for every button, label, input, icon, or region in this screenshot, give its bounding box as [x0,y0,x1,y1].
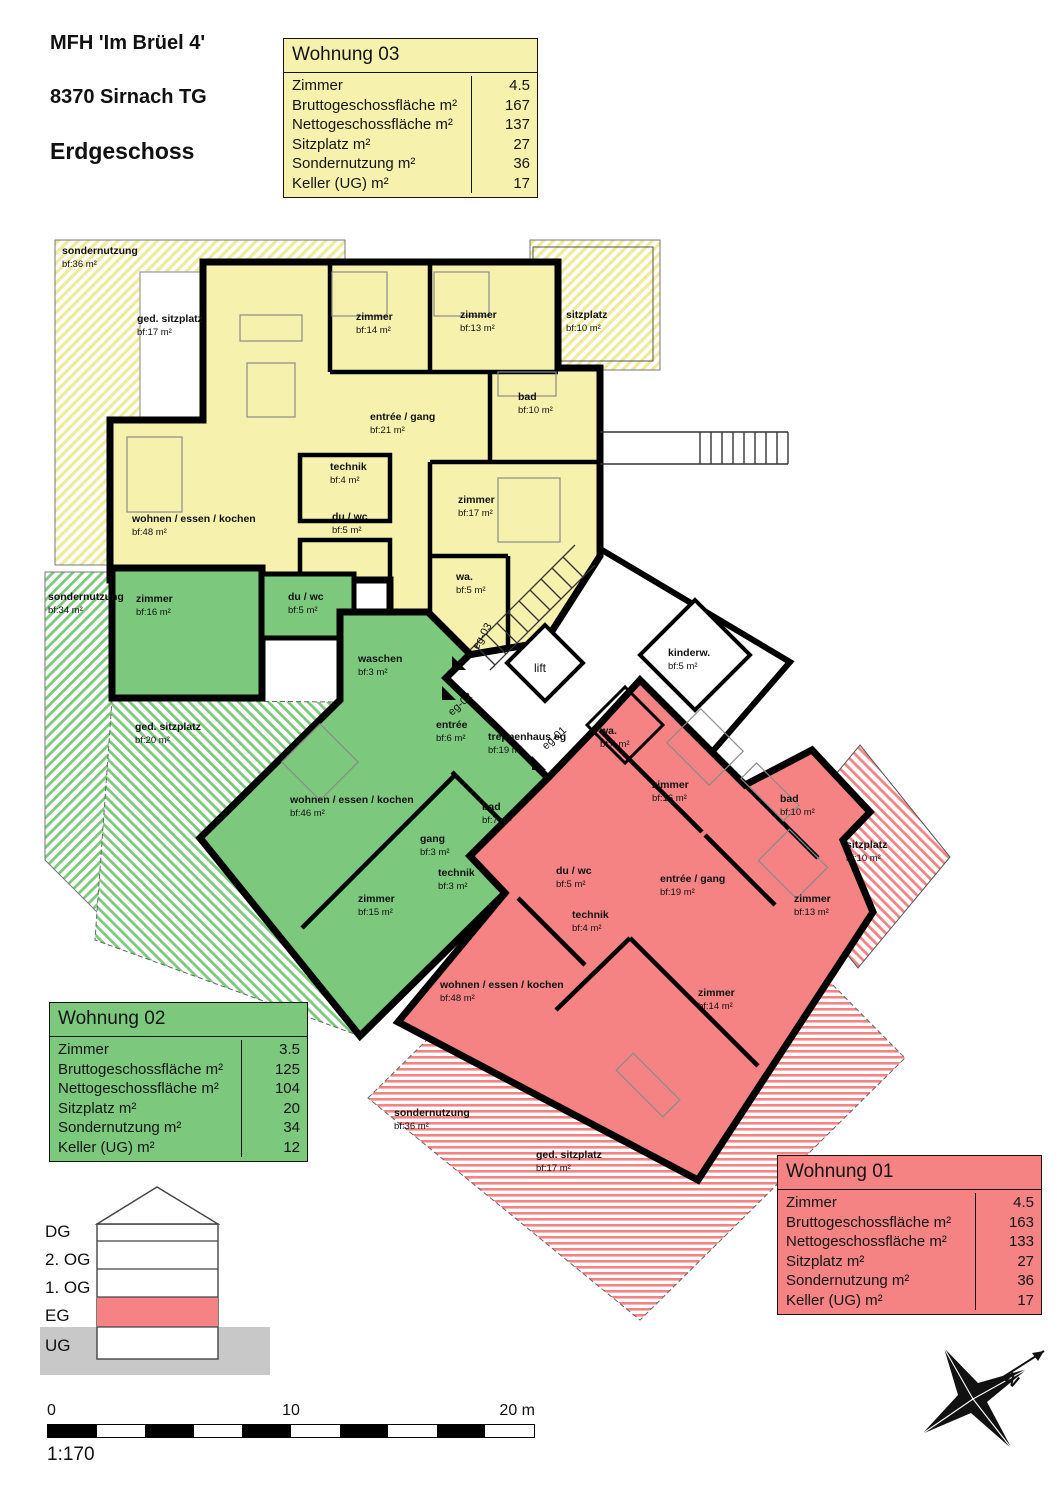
room-area-label: bf:5 m² [668,661,698,672]
table-row: Bruttogeschossfläche m²163 [778,1213,1041,1233]
compass-rose: N [912,1336,1052,1476]
table-row: Nettogeschossfläche m²133 [778,1232,1041,1252]
room-area-label: bf:7 m² [482,815,512,826]
room-area-label: bf:10 m² [780,807,815,818]
table-wohnung-01: Wohnung 01 Zimmer4.5Bruttogeschossfläche… [777,1155,1042,1315]
scale-start: 0 [47,1402,56,1420]
room-area-label: bf:6 m² [436,733,466,744]
room-area-label: bf:20 m² [135,735,170,746]
room-area-label: bf:17 m² [137,327,172,338]
room-label: du / wc [332,511,368,523]
room-area-label: bf:16 m² [136,607,171,618]
room-area-label: bf:36 m² [62,259,97,270]
row-value: 12 [241,1138,307,1158]
room-label: technik [330,461,367,473]
section-floor-eg-fill [97,1297,218,1327]
room-area-label: bf:5 m² [456,585,486,596]
room-label: entrée / gang [370,411,435,423]
room-area-label: bf:4 m² [572,923,602,934]
row-label: Bruttogeschossfläche m² [778,1213,975,1233]
row-label: Keller (UG) m² [50,1138,241,1158]
table-row: Sitzplatz m²20 [50,1099,307,1119]
row-label: Zimmer [50,1040,241,1060]
room-area-label: bf:4 m² [330,475,360,486]
floor-label-dg: DG [45,1222,71,1241]
room-area-label: bf:5 m² [332,525,362,536]
table-row: Sondernutzung m²34 [50,1118,307,1138]
room-area-label: bf:10 m² [518,405,553,416]
room-area-label: bf:36 m² [394,1121,429,1132]
row-value: 167 [471,96,537,116]
room-label: zimmer [652,779,689,791]
room-area-label: bf:14 m² [356,325,391,336]
row-label: Sondernutzung m² [50,1118,241,1138]
room-area-label: bf:48 m² [132,527,167,538]
room-label: zimmer [458,494,495,506]
row-value: 27 [975,1252,1041,1272]
row-value: 27 [471,135,537,155]
row-value: 4.5 [471,76,537,96]
room-label: zimmer [358,893,395,905]
room-area-label: bf:19 m² [488,745,523,756]
room-area-label: bf:3 m² [420,847,450,858]
room-label: kinderw. [668,647,710,659]
room-area-label: bf:15 m² [358,907,393,918]
row-label: Zimmer [778,1193,975,1213]
room-label: entrée [436,719,468,731]
room-label: bad [780,793,799,805]
table-row: Bruttogeschossfläche m²167 [284,96,537,116]
row-value: 125 [241,1060,307,1080]
row-label: Sitzplatz m² [50,1099,241,1119]
room-label: wohnen / essen / kochen [131,513,256,525]
floor-label-1og: 1. OG [45,1278,90,1297]
table-row: Zimmer4.5 [284,76,537,96]
room-area-label: bf:17 m² [458,508,493,519]
room-label: lift [534,661,547,675]
row-value: 17 [975,1291,1041,1311]
row-value: 4.5 [975,1193,1041,1213]
row-label: Bruttogeschossfläche m² [284,96,471,116]
row-value: 36 [471,154,537,174]
row-label: Nettogeschossfläche m² [284,115,471,135]
room-label: technik [572,909,609,921]
row-label: Bruttogeschossfläche m² [50,1060,241,1080]
row-value: 133 [975,1232,1041,1252]
table-row: Nettogeschossfläche m²104 [50,1079,307,1099]
table-row: Keller (UG) m²17 [284,174,537,194]
room-label: du / wc [556,865,592,877]
room-label: zimmer [460,309,497,321]
room-label: zimmer [794,893,831,905]
table-title: Wohnung 01 [778,1156,1041,1190]
table-row: Keller (UG) m²17 [778,1291,1041,1311]
table-row: Zimmer3.5 [50,1040,307,1060]
room-area-label: bf:48 m² [440,993,475,1004]
table-rows: Zimmer3.5Bruttogeschossfläche m²125Netto… [50,1037,307,1161]
table-wohnung-02: Wohnung 02 Zimmer3.5Bruttogeschossfläche… [49,1002,308,1162]
room-label: sitzplatz [846,839,887,851]
room-label: gang [420,833,445,845]
room-label: sondernutzung [394,1107,470,1119]
floor-label-2og: 2. OG [45,1250,90,1269]
room-label: entrée / gang [660,873,725,885]
scale-ratio: 1:170 [47,1444,535,1466]
room-area-label: bf:16 m² [652,793,687,804]
room-label: zimmer [356,311,393,323]
room-label: wohnen / essen / kochen [439,979,564,991]
row-value: 36 [975,1271,1041,1291]
room-label: zimmer [698,987,735,999]
row-value: 163 [975,1213,1041,1233]
room-area-label: bf:5 m² [288,605,318,616]
scale-bar: 0 10 20 m 1:170 [47,1402,535,1466]
room-area-label: bf:13 m² [460,323,495,334]
table-rows: Zimmer4.5Bruttogeschossfläche m²163Netto… [778,1190,1041,1314]
table-title: Wohnung 03 [284,39,537,73]
room-area-label: bf:3 m² [358,667,388,678]
room-area-label: bf:34 m² [48,605,83,616]
room-label: sondernutzung [48,591,124,603]
row-value: 20 [241,1099,307,1119]
table-wohnung-03: Wohnung 03 Zimmer4.5Bruttogeschossfläche… [283,38,538,198]
table-rows: Zimmer4.5Bruttogeschossfläche m²167Netto… [284,73,537,197]
room-area-label: bf:10 m² [566,323,601,334]
room-label: ged. sitzplatz [135,721,201,733]
room-area-label: bf:14 m² [698,1001,733,1012]
room-label: du / wc [288,591,324,603]
section-house-body [97,1224,218,1359]
row-label: Keller (UG) m² [284,174,471,194]
entrance-walkway [600,432,788,464]
floorplan-sheet: MFH 'Im Brüel 4' 8370 Sirnach TG Erdgesc… [0,0,1061,1500]
row-label: Keller (UG) m² [778,1291,975,1311]
building-section-diagram: DG 2. OG 1. OG EG UG [40,1185,270,1380]
room-area-label: bf:13 m² [794,907,829,918]
room-label: bad [482,801,501,813]
row-value: 104 [241,1079,307,1099]
scale-mid: 10 [282,1402,300,1420]
room-area-label: bf:19 m² [660,887,695,898]
table-row: Sitzplatz m²27 [778,1252,1041,1272]
room-area-label: bf:10 m² [846,853,881,864]
row-label: Nettogeschossfläche m² [778,1232,975,1252]
room-label: zimmer [136,593,173,605]
room-label: bad [518,391,537,403]
table-row: Nettogeschossfläche m²137 [284,115,537,135]
room-label: waschen [357,653,402,665]
floor-label-ug: UG [45,1336,71,1355]
room-area-label: bf:3 m² [438,881,468,892]
room-area-label: bf:17 m² [536,1163,571,1174]
room-label: sitzplatz [566,309,607,321]
table-title: Wohnung 02 [50,1003,307,1037]
room-label: ged. sitzplatz [536,1149,602,1161]
room-label: ged. sitzplatz [137,313,203,325]
north-arrow-tip [1032,1351,1044,1361]
floor-label-eg: EG [45,1306,70,1325]
room-label: sondernutzung [62,245,138,257]
row-label: Sitzplatz m² [284,135,471,155]
row-value: 17 [471,174,537,194]
scale-end: 20 m [499,1402,535,1420]
section-roof [97,1187,218,1224]
table-row: Bruttogeschossfläche m²125 [50,1060,307,1080]
table-row: Sondernutzung m²36 [284,154,537,174]
table-row: Sitzplatz m²27 [284,135,537,155]
row-label: Zimmer [284,76,471,96]
room-area-label: bf:21 m² [370,425,405,436]
row-label: Nettogeschossfläche m² [50,1079,241,1099]
row-label: Sitzplatz m² [778,1252,975,1272]
room-label: wohnen / essen / kochen [289,794,414,806]
room-area-label: bf:4 m² [600,739,630,750]
room-label: wa. [599,725,617,737]
room-area-label: bf:46 m² [290,808,325,819]
table-row: Zimmer4.5 [778,1193,1041,1213]
row-label: Sondernutzung m² [778,1271,975,1291]
row-label: Sondernutzung m² [284,154,471,174]
room-label: technik [438,867,475,879]
room-label: wa. [455,571,473,583]
table-row: Keller (UG) m²12 [50,1138,307,1158]
scale-bar-segments [47,1424,535,1438]
row-value: 137 [471,115,537,135]
row-value: 34 [241,1118,307,1138]
table-row: Sondernutzung m²36 [778,1271,1041,1291]
row-value: 3.5 [241,1040,307,1060]
room-area-label: bf:5 m² [556,879,586,890]
compass-facets [922,1348,1027,1449]
